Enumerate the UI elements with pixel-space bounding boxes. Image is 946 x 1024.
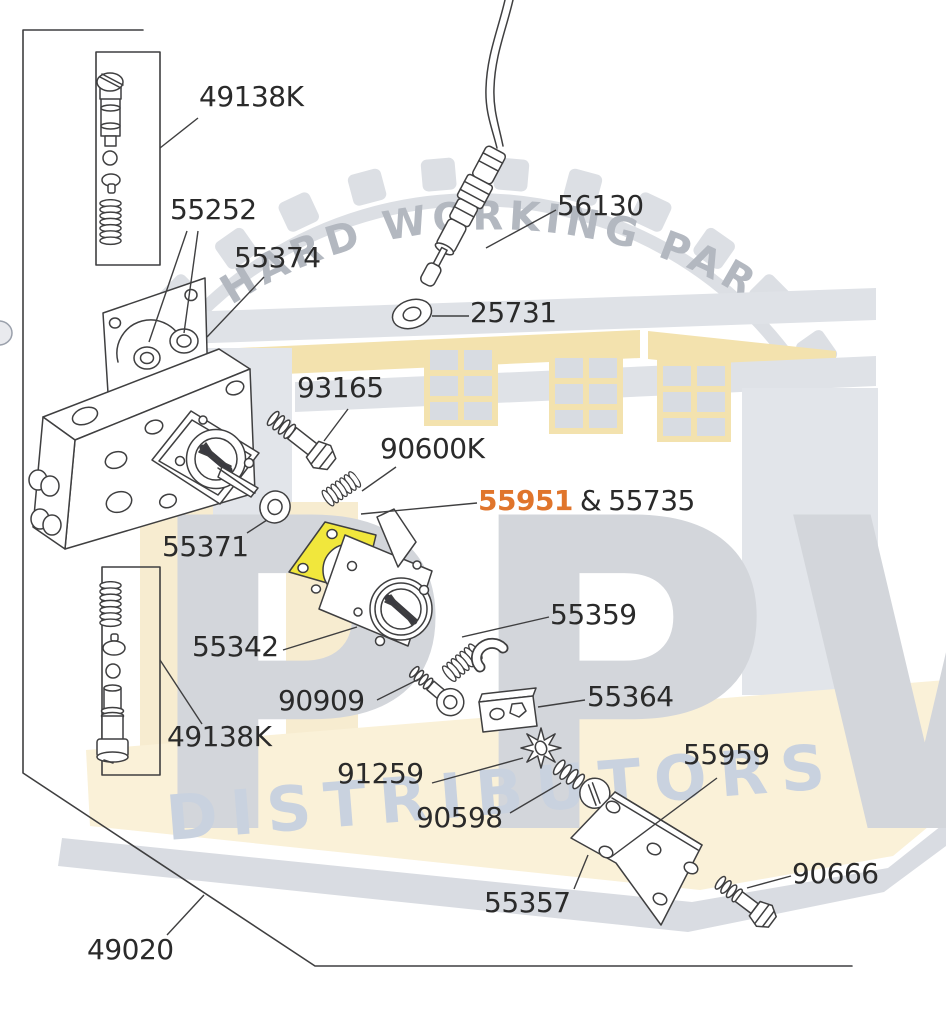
part-label-55951-55735: 55951&55735 <box>478 487 695 515</box>
part-label-93165: 93165 <box>297 374 384 402</box>
leader-55374 <box>207 277 264 337</box>
spring-clip <box>476 643 503 667</box>
spacer-block <box>479 688 537 732</box>
leader-93165 <box>324 409 348 441</box>
leader-90598 <box>510 783 561 813</box>
leader-55371 <box>247 520 267 533</box>
cable-washer <box>389 295 436 334</box>
leader-91259 <box>432 758 523 783</box>
mounting-bracket <box>571 792 702 925</box>
leader-55357 <box>574 855 588 889</box>
parts-diagram: HARD WORKING PARTS <box>0 0 946 1024</box>
part-label-55342: 55342 <box>192 633 279 661</box>
leader-90666 <box>747 876 791 888</box>
part-label-90598: 90598 <box>416 804 503 832</box>
leader-56130 <box>486 210 556 248</box>
spring-small <box>320 470 362 507</box>
seal-washer <box>256 488 293 527</box>
part-label-55252: 55252 <box>170 196 257 224</box>
valve-block <box>29 349 259 549</box>
highlighted-part-number: 55951 <box>478 484 573 517</box>
part-label-55364: 55364 <box>587 683 674 711</box>
part-label-56130: 56130 <box>557 192 644 220</box>
part-label-90666: 90666 <box>792 860 879 888</box>
leader-49138k-bottom <box>160 660 202 724</box>
leader-55951 <box>361 503 477 514</box>
part-label-90909: 90909 <box>278 687 365 715</box>
leader-90909 <box>377 678 421 700</box>
part-label-55359: 55359 <box>550 601 637 629</box>
needle-valve-kit-top <box>97 73 123 244</box>
part-label-49138k-top: 49138K <box>199 83 303 111</box>
leader-49020 <box>167 895 204 935</box>
star-washer <box>521 728 561 768</box>
hex-bolt-lower <box>710 871 780 933</box>
leader-49138k-top <box>160 118 198 148</box>
part-label-49020: 49020 <box>87 936 174 964</box>
leader-55364 <box>538 700 585 707</box>
part-label-25731: 25731 <box>470 299 557 327</box>
leader-55342 <box>283 627 357 650</box>
part-label-91259: 91259 <box>337 760 424 788</box>
part-label-55374: 55374 <box>234 244 321 272</box>
companion-part-number: 55735 <box>608 484 695 517</box>
throttle-cable <box>413 0 513 291</box>
label-separator: & <box>580 484 601 517</box>
part-label-55371: 55371 <box>162 533 249 561</box>
part-label-55357: 55357 <box>484 889 571 917</box>
hex-bolt-upper <box>262 406 340 475</box>
leader-90600k <box>362 467 396 491</box>
leader-55359 <box>462 617 549 637</box>
part-label-90600k: 90600K <box>380 435 484 463</box>
part-label-55959: 55959 <box>683 741 770 769</box>
part-label-49138k-bottom: 49138K <box>167 723 271 751</box>
